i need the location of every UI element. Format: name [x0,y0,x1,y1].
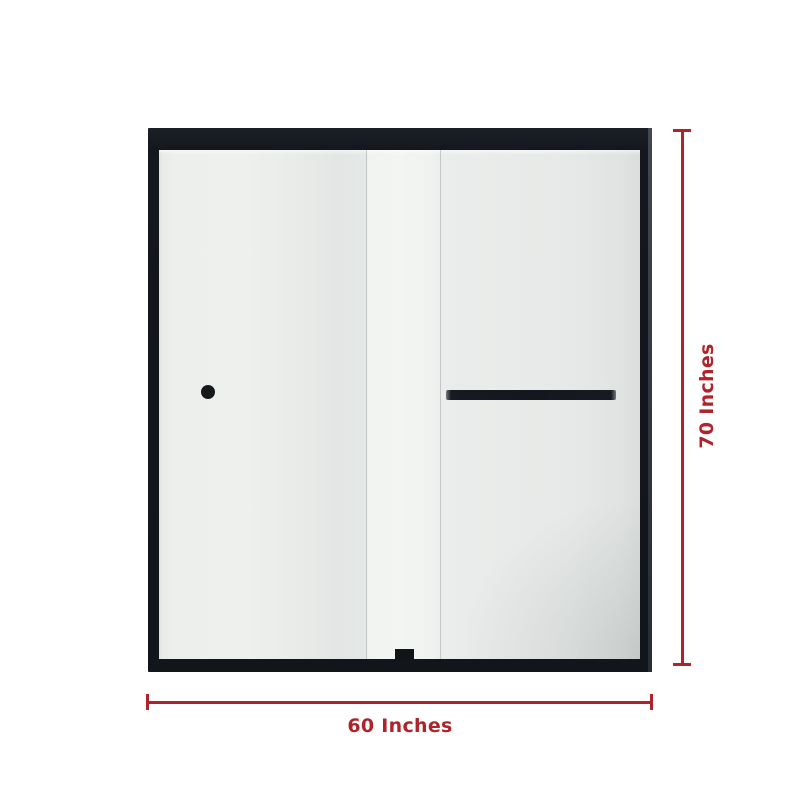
height-dimension-tick-bottom [673,663,691,666]
towel-bar-handle [446,390,616,400]
height-dimension-tick-top [673,129,691,132]
frame-right-edge-highlight [648,128,652,672]
width-dimension-label: 60 Inches [347,715,452,737]
panel-divider-line [366,150,367,659]
shower-door-frame [148,128,652,672]
glass-panel [159,150,640,659]
height-dimension-label: 70 Inches [696,343,718,448]
width-dimension-tick-right [650,694,653,710]
bottom-door-guide [395,649,414,659]
product-dimension-image: 70 Inches 60 Inches [0,0,800,800]
door-knob [201,385,215,399]
width-dimension-line [148,701,652,704]
sliding-panel-edge [440,150,441,659]
height-dimension-line [681,130,684,666]
width-dimension-tick-left [146,694,149,710]
